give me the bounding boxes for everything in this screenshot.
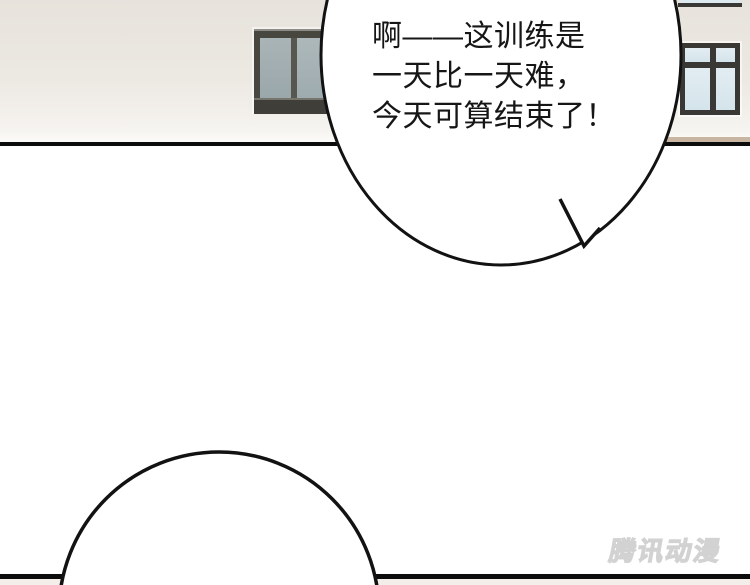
left-window-pane-left [260, 38, 291, 98]
wall-edge-line [0, 142, 750, 146]
top-window-fragment [678, 0, 742, 7]
speech-bubble-tail-outline [560, 199, 600, 246]
right-window-pane-bottom-right [716, 68, 735, 110]
speech-text-line-3: 今天可算结束了！ [372, 97, 616, 137]
left-window-sill [254, 98, 332, 114]
left-window [254, 29, 332, 112]
right-window-pane-bottom-left [685, 68, 710, 110]
speech-text-line-1: 啊——这训练是 [372, 17, 616, 57]
speech-bubble-tail-fill [560, 199, 600, 246]
speech-bubble-bottom-partial [59, 452, 379, 585]
comic-panel: 腾讯动漫 啊——这训练是 一天比一天难， 今天可算结束了！ [0, 0, 750, 585]
floor-strip [0, 579, 750, 585]
speech-text: 啊——这训练是 一天比一天难， 今天可算结束了！ [372, 17, 616, 137]
right-window-pane-top-left [685, 48, 710, 62]
right-window-pane-top-right [716, 48, 735, 62]
speech-text-line-2: 一天比一天难， [372, 57, 616, 97]
tencent-comics-watermark: 腾讯动漫 [607, 531, 726, 568]
window-frame-bar [678, 3, 742, 7]
left-window-pane-right [297, 38, 332, 98]
right-window [680, 43, 740, 115]
